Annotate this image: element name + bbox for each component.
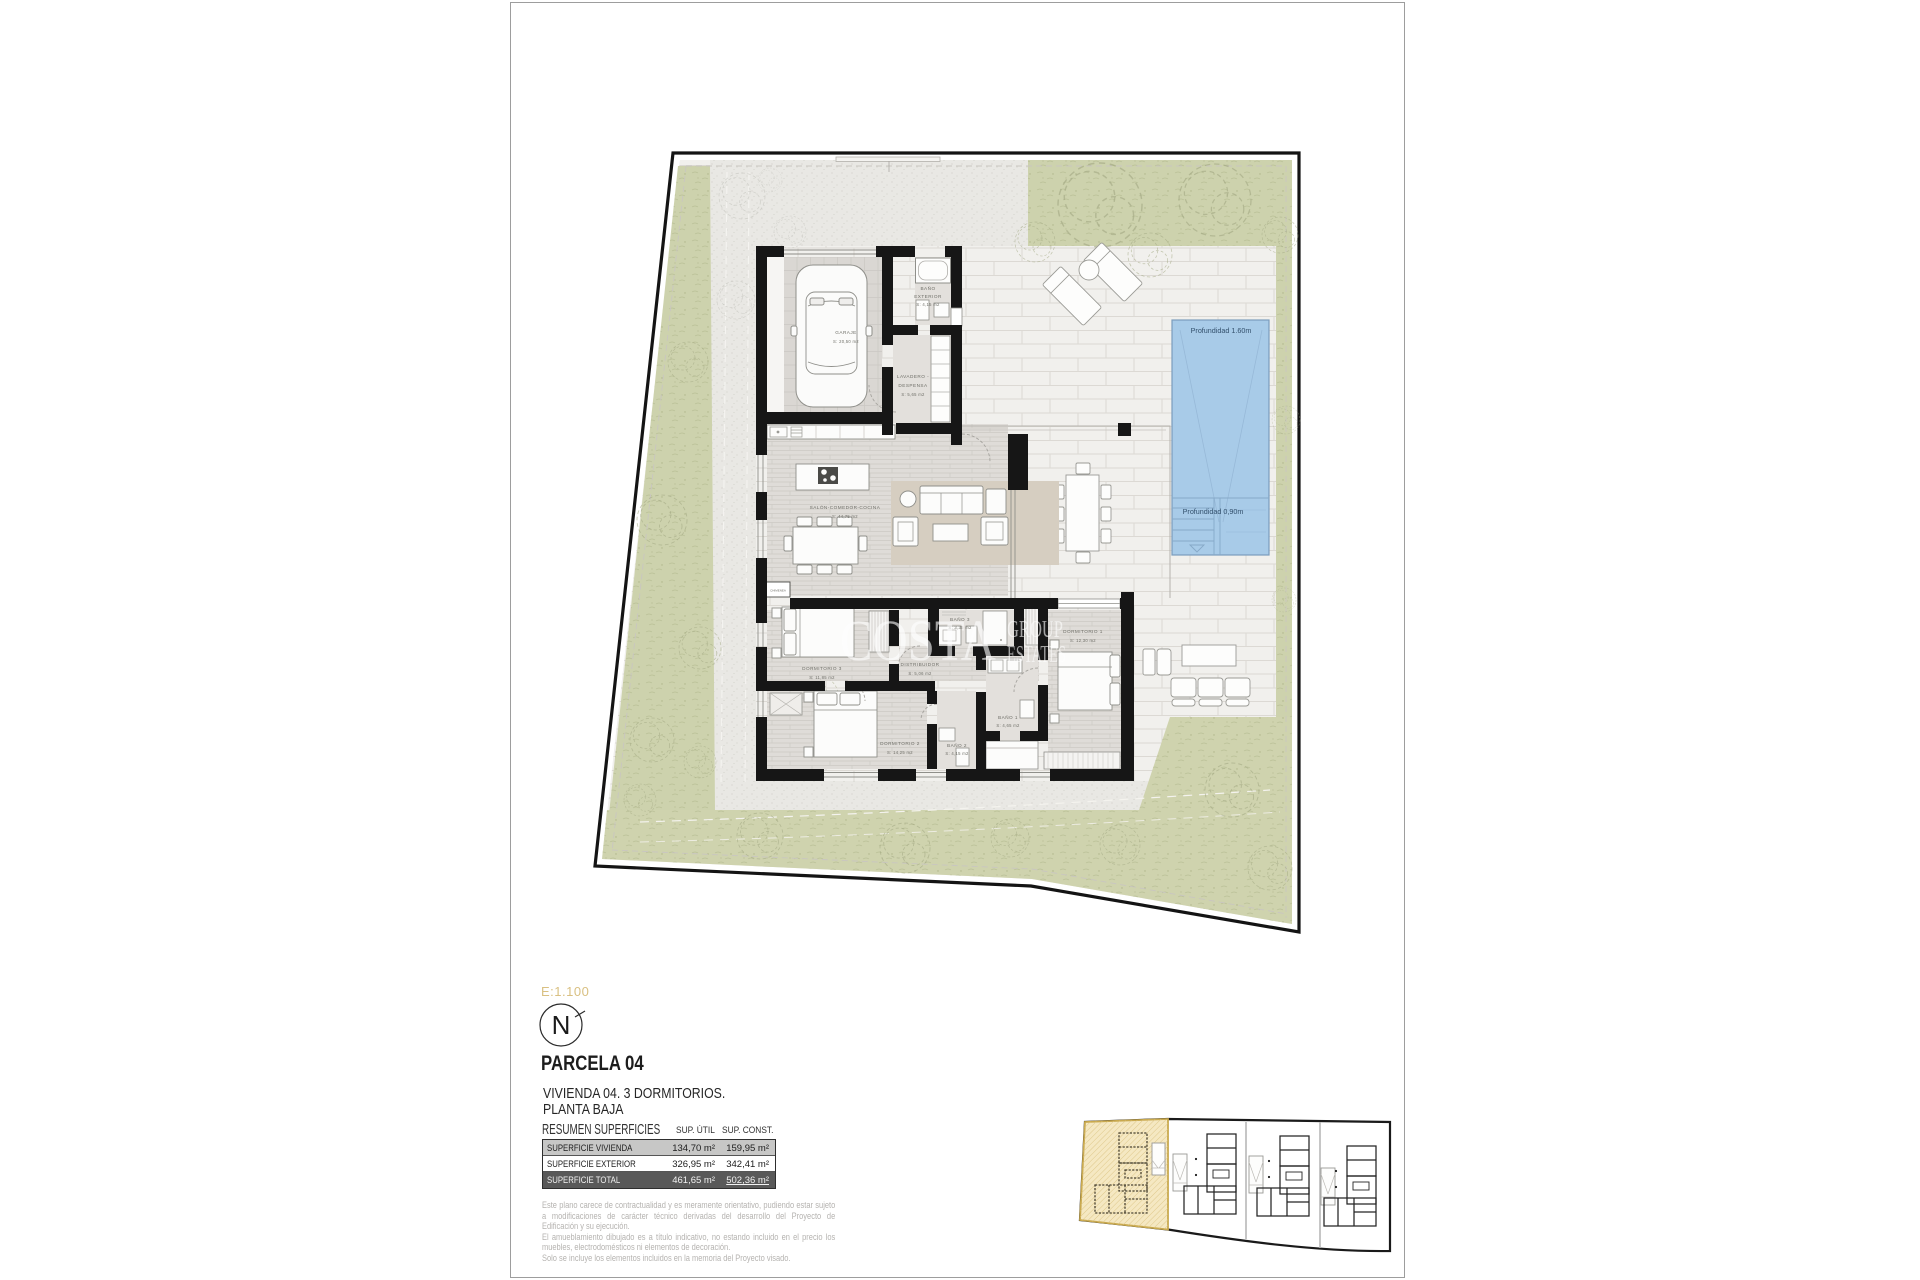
svg-text:S: 11,85 m2: S: 11,85 m2 [809, 675, 835, 680]
svg-text:DESPENSA: DESPENSA [898, 383, 928, 388]
svg-text:DORMITORIO 3: DORMITORIO 3 [802, 666, 842, 671]
svg-text:N: N [552, 1010, 571, 1040]
svg-text:Profundidad 0,90m: Profundidad 0,90m [1183, 507, 1244, 516]
svg-text:S: 20,50 m2: S: 20,50 m2 [833, 339, 859, 344]
svg-text:S: 4,15 m2: S: 4,15 m2 [945, 751, 969, 756]
svg-text:COSTA: COSTA [840, 608, 996, 673]
svg-text:LAVADERO -: LAVADERO - [897, 374, 929, 379]
svg-text:Profundidad 1.60m: Profundidad 1.60m [1191, 326, 1252, 335]
svg-text:S: 12,30 m2: S: 12,30 m2 [1070, 638, 1096, 643]
svg-text:DORMITORIO 1: DORMITORIO 1 [1063, 629, 1103, 634]
svg-text:S: 4,15 m2: S: 4,15 m2 [916, 302, 940, 307]
svg-text:GROUP: GROUP [1007, 617, 1063, 643]
svg-text:GARAJE: GARAJE [835, 330, 856, 335]
svg-text:S: 4,65 m2: S: 4,65 m2 [996, 723, 1020, 728]
svg-text:DORMITORIO 2: DORMITORIO 2 [880, 741, 920, 746]
svg-text:CHIMENEA: CHIMENEA [770, 589, 786, 593]
svg-text:ESTATES: ESTATES [1007, 642, 1066, 668]
svg-text:BAÑO 1: BAÑO 1 [998, 714, 1018, 720]
svg-text:BAÑO: BAÑO [920, 285, 935, 291]
svg-text:BAÑO 2: BAÑO 2 [947, 742, 967, 748]
svg-text:S: 44,75 m2: S: 44,75 m2 [832, 514, 858, 519]
svg-text:S: 5,65 m2: S: 5,65 m2 [901, 392, 925, 397]
svg-text:EXTERIOR: EXTERIOR [914, 294, 942, 299]
svg-text:S: 14,25 m2: S: 14,25 m2 [887, 750, 913, 755]
svg-text:SALÓN-COMEDOR-COCINA: SALÓN-COMEDOR-COCINA [810, 504, 881, 510]
